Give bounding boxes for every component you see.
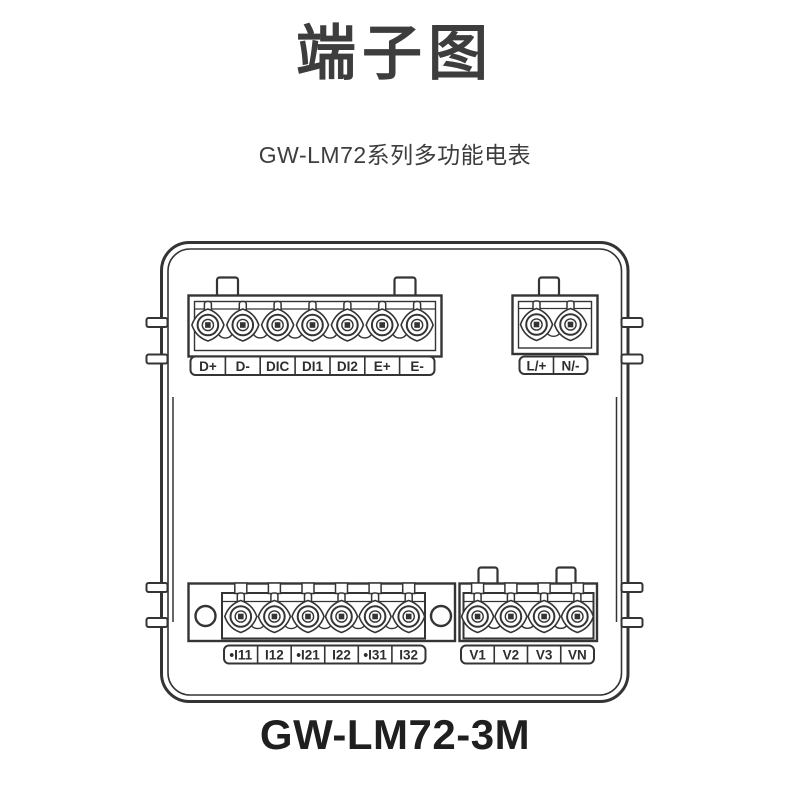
terminal-label: DIC [266,359,290,374]
mounting-clip-left-1 [147,318,168,327]
mounting-hole [431,606,451,626]
terminal-label: VN [568,648,587,663]
mounting-clip-right-3 [622,583,643,592]
terminal-label: •I31 [363,648,387,663]
terminal-label: V2 [503,648,520,663]
terminal-label: L/+ [527,358,547,373]
terminal-label: V1 [469,648,486,663]
connector-tooth [235,583,247,594]
terminal-label: I22 [332,648,351,663]
terminal-label: DI1 [302,359,324,374]
model-caption: GW-LM72-3M [0,711,790,759]
terminal-label: I12 [265,648,284,663]
terminal-label: V3 [536,648,553,663]
terminal-block-top-left: D+ D- DIC DI1 DI2 E+ E- [189,278,442,376]
terminal-label: I32 [399,648,418,663]
connector-tooth [302,583,314,594]
connector-tooth [505,583,517,594]
terminal-label: •I21 [296,648,320,663]
connector-tooth [538,583,550,594]
terminal-label: E- [410,359,424,374]
terminal-block-bottom-left: •I11 I12 •I21 I22 •I31 I32 [189,583,456,664]
mounting-clip-right-1 [622,318,643,327]
terminal-block-top-right: L/+ N/- [513,278,598,375]
terminal-label: E+ [374,359,391,374]
mounting-clip-right-2 [622,355,643,364]
connector-tooth [336,583,348,594]
terminal-diagram: D+ D- DIC DI1 DI2 E+ E- L/+ N/- [0,0,790,790]
terminal-block-bottom-right: V1 V2 V3 VN [460,568,598,664]
terminal-label: D- [236,359,250,374]
terminal-label: •I11 [229,648,252,663]
connector-tooth [369,583,381,594]
mounting-hole [196,606,216,626]
terminal-label-bar: V1 V2 V3 VN [461,646,594,664]
page-root: 端子图 GW-LM72系列多功能电表 [0,0,790,790]
terminal-label-bar: •I11 I12 •I21 I22 •I31 I32 [224,646,426,664]
terminal-label-bar: D+ D- DIC DI1 DI2 E+ E- [191,357,435,376]
mounting-clip-left-3 [147,583,168,592]
connector-tooth [403,583,415,594]
terminal-label: D+ [199,359,217,374]
connector-tooth [571,583,583,594]
connector-tooth [472,583,484,594]
connector-tooth [268,583,280,594]
terminal-label-bar: L/+ N/- [520,357,588,375]
terminal-label: N/- [562,358,580,373]
terminal-label: DI2 [337,359,358,374]
mounting-clip-left-2 [147,355,168,364]
mounting-clip-right-4 [622,618,643,627]
mounting-clip-left-4 [147,618,168,627]
